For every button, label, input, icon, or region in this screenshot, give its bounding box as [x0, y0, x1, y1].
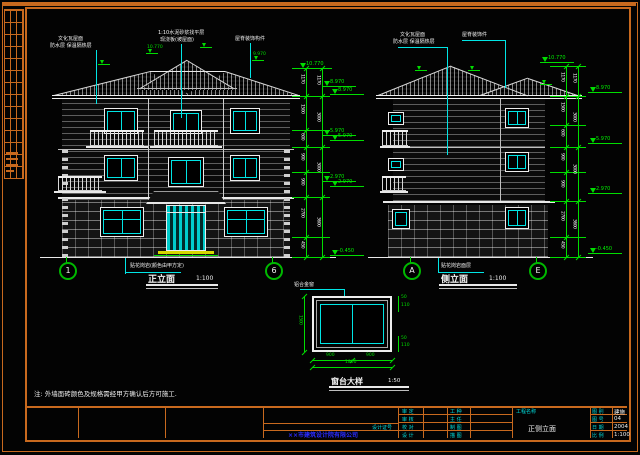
- titleblock-label: 比 例: [592, 432, 604, 439]
- titleblock-label: 审 定: [402, 408, 414, 415]
- roof-level-value: 9.970: [253, 53, 266, 58]
- dim-ext: [292, 147, 330, 148]
- dim-ext: [550, 257, 586, 258]
- leader-line: [344, 289, 345, 296]
- detail-scale: 1:50: [388, 378, 400, 384]
- titleblock-value: 1:100: [614, 432, 630, 438]
- grid-marker-a: A: [403, 262, 421, 280]
- dim-ext: [550, 147, 586, 148]
- ground-finish-note: 贴花岗岩(颜色由甲方定): [130, 263, 184, 269]
- side-floor-line: [393, 147, 545, 148]
- roof-annotation: 现浇板(坡屋面): [160, 37, 194, 43]
- level-marker: 5.970: [588, 143, 622, 144]
- front-floor-line: [58, 149, 294, 150]
- level-marker: 5.970: [322, 135, 356, 136]
- grid-marker-6: 6: [265, 262, 283, 280]
- sign-table-mark: [6, 152, 18, 154]
- titleblock-label: 审 核: [402, 416, 414, 423]
- dim-ext: [550, 237, 586, 238]
- title-underline: [146, 288, 218, 289]
- dim-ext: [292, 96, 330, 97]
- titleblock-label: 校 对: [402, 424, 414, 431]
- dim-value: 1500: [297, 315, 302, 324]
- step-base-line: [154, 255, 218, 256]
- entrance-step: [158, 251, 214, 254]
- window: [392, 209, 410, 229]
- dim-value: 1170: [299, 74, 304, 83]
- window: [104, 155, 138, 181]
- dim-ext: [292, 197, 330, 198]
- ground-finish-note: 贴花岗岩面层: [441, 263, 471, 269]
- balcony-slab: [86, 146, 148, 148]
- drawing-title: 正侧立面: [528, 424, 556, 434]
- roof-annotation: 1:10水泥砂浆找平层: [158, 30, 204, 36]
- dim-value: 600: [299, 133, 304, 140]
- title-underline: [439, 284, 517, 286]
- balcony-railing: [58, 176, 102, 191]
- level-marker: -0.450: [588, 253, 622, 254]
- leader-line: [300, 289, 345, 290]
- leader-line: [505, 40, 506, 88]
- titleblock-divider: [165, 406, 166, 438]
- dim-ext: [292, 172, 330, 173]
- dim-chain: [312, 367, 392, 368]
- title-underline: [329, 390, 409, 391]
- cad-drawing-canvas: 文化瓦屋面 防水层 保温隔热层 1:10水泥砂浆找平层 现浇板(坡屋面) 屋脊装…: [0, 0, 640, 455]
- dim-value: 600: [559, 129, 564, 136]
- front-ridge: [150, 71, 225, 72]
- level-marker: 5.970: [330, 140, 364, 141]
- dim-ext: [550, 66, 586, 67]
- dim-value: 1800: [345, 361, 356, 366]
- dim-value: 900: [299, 153, 304, 160]
- roof-level-flag: [468, 70, 480, 71]
- project-name-label: 工程名称: [516, 408, 536, 415]
- balcony-railing: [90, 130, 144, 146]
- sign-table-mark: [6, 158, 18, 160]
- dim-value: 3000: [315, 162, 320, 171]
- roof-annotation: 防水层 保温隔热层: [393, 39, 435, 45]
- title-underline: [146, 284, 218, 286]
- top-border-band: [2, 3, 636, 6]
- titleblock-divider: [263, 406, 264, 438]
- roof-annotation: 文化瓦屋面: [400, 32, 425, 38]
- titleblock-label: 图 别: [592, 408, 604, 415]
- balcony-railing: [382, 130, 408, 146]
- level-marker: -0.450: [330, 255, 364, 256]
- side-elevation-scale: 1:100: [489, 275, 506, 282]
- dim-value: 3000: [571, 112, 576, 121]
- titleblock-label: 工 种: [450, 408, 462, 415]
- roof-annotation: 文化瓦屋面: [58, 36, 83, 42]
- general-note: 注: 外墙面砖颜色及规格需经甲方确认后方可施工.: [34, 388, 177, 398]
- balcony-slab: [380, 191, 408, 193]
- entrance-canopy: [146, 191, 226, 204]
- level-marker: 8.970: [322, 86, 356, 87]
- cert-label: 设计证号: [372, 424, 392, 431]
- front-quoin-right: [284, 150, 290, 257]
- balcony-slab: [380, 146, 410, 148]
- dim-value: 3600: [315, 217, 320, 226]
- window: [388, 158, 404, 171]
- leader-line: [96, 50, 97, 104]
- dim-value: 2700: [299, 208, 304, 217]
- dim-ext: [292, 237, 330, 238]
- balcony-door: [168, 157, 204, 187]
- door-transom: [167, 212, 205, 213]
- leader-line: [398, 47, 448, 48]
- balcony-railing: [154, 130, 218, 146]
- dim-ext: [550, 96, 586, 97]
- dim-value: 900: [299, 178, 304, 185]
- grid-marker-e: E: [529, 262, 547, 280]
- dim-value: 900: [559, 180, 564, 187]
- leader-line: [462, 40, 506, 41]
- dim-chain: [304, 296, 305, 352]
- dim-value: 1500: [559, 102, 564, 111]
- roof-level-flag: [252, 60, 264, 61]
- titleblock-label: 设 计: [402, 432, 414, 439]
- sign-table-mark: [6, 170, 14, 172]
- dim-value: 110: [401, 344, 410, 349]
- window: [100, 207, 144, 237]
- roof-level-flag: [415, 70, 427, 71]
- dim-value: 900: [366, 354, 375, 359]
- titleblock-value: 建施: [614, 408, 625, 416]
- detail-window-mullion: [352, 305, 353, 343]
- leader-line: [438, 258, 439, 272]
- titleblock-value: 04: [614, 416, 621, 422]
- leader-line: [181, 44, 182, 118]
- dim-value: 3600: [571, 219, 576, 228]
- grid-marker-1: 1: [59, 262, 77, 280]
- sign-table-mark: [6, 164, 18, 166]
- front-gable-eave: [137, 88, 237, 89]
- window: [230, 155, 260, 181]
- roof-level-flag: [540, 84, 552, 85]
- dim-ext: [550, 172, 586, 173]
- front-quoin-left: [62, 150, 68, 257]
- titleblock-label: 主 任: [450, 416, 462, 423]
- dim-value: 3000: [315, 112, 320, 121]
- window: [505, 152, 529, 172]
- titleblock-value: 2004: [614, 424, 628, 430]
- side-wall-joint: [500, 99, 501, 201]
- dim-value: 110: [401, 304, 410, 309]
- dim-value: 1170: [571, 73, 576, 82]
- titleblock-label: 图 号: [592, 416, 604, 423]
- dim-value: 450: [559, 241, 564, 248]
- dim-value: 450: [299, 241, 304, 248]
- title-underline: [329, 386, 409, 388]
- front-eave: [52, 95, 300, 99]
- level-marker: 2.970: [322, 181, 356, 182]
- dim-chain: [398, 296, 399, 312]
- balcony-slab: [150, 146, 222, 148]
- company-name: ××市建筑设计院有限公司: [288, 430, 358, 439]
- dim-value: 2700: [559, 211, 564, 220]
- titleblock-label: 制 图: [450, 424, 462, 431]
- level-marker: 2.970: [588, 193, 622, 194]
- roof-level-flag: [146, 53, 158, 54]
- dim-ext: [550, 125, 586, 126]
- level-marker: 8.970: [588, 92, 622, 93]
- roof-level-flag: [200, 47, 212, 48]
- window: [224, 207, 268, 237]
- titleblock-label: 日 期: [592, 424, 604, 431]
- balcony-railing: [382, 176, 406, 191]
- titleblock-label: 描 图: [450, 432, 462, 439]
- window: [505, 108, 529, 128]
- window: [388, 112, 404, 125]
- dim-ext: [292, 257, 330, 258]
- dim-value: 900: [326, 354, 335, 359]
- dim-value: 1170: [559, 72, 564, 81]
- leader-line: [447, 47, 448, 155]
- side-slab-line: [383, 201, 555, 203]
- dim-value: 50: [401, 296, 407, 301]
- dim-value: 3000: [571, 164, 576, 173]
- dim-value: 1170: [315, 75, 320, 84]
- level-marker: 10.770: [298, 68, 332, 69]
- titleblock-top: [25, 406, 627, 408]
- dim-ext: [550, 201, 586, 202]
- level-marker: 2.970: [330, 186, 364, 187]
- roof-level-value: 10.770: [147, 46, 163, 51]
- leader-line: [250, 43, 251, 78]
- dim-chain: [398, 336, 399, 352]
- level-marker: 10.770: [540, 62, 574, 63]
- titleblock-divider: [78, 406, 79, 438]
- detail-leader-text: 铝合金窗: [294, 282, 314, 288]
- dim-value: 50: [401, 337, 407, 342]
- front-elevation-scale: 1:100: [196, 275, 213, 282]
- title-underline: [439, 288, 517, 289]
- roof-annotation: 屋脊装饰构件: [235, 36, 265, 42]
- dim-value: 900: [559, 153, 564, 160]
- roof-annotation: 屋脊装饰件: [462, 32, 487, 38]
- titleblock-divider: [512, 406, 513, 438]
- roof-level-flag: [98, 64, 110, 65]
- roof-annotation: 防水层 保温隔热层: [50, 43, 92, 49]
- level-marker: 8.970: [330, 94, 364, 95]
- balcony-slab: [54, 191, 106, 193]
- window: [230, 108, 260, 134]
- window: [505, 207, 529, 229]
- dim-value: 1500: [299, 104, 304, 113]
